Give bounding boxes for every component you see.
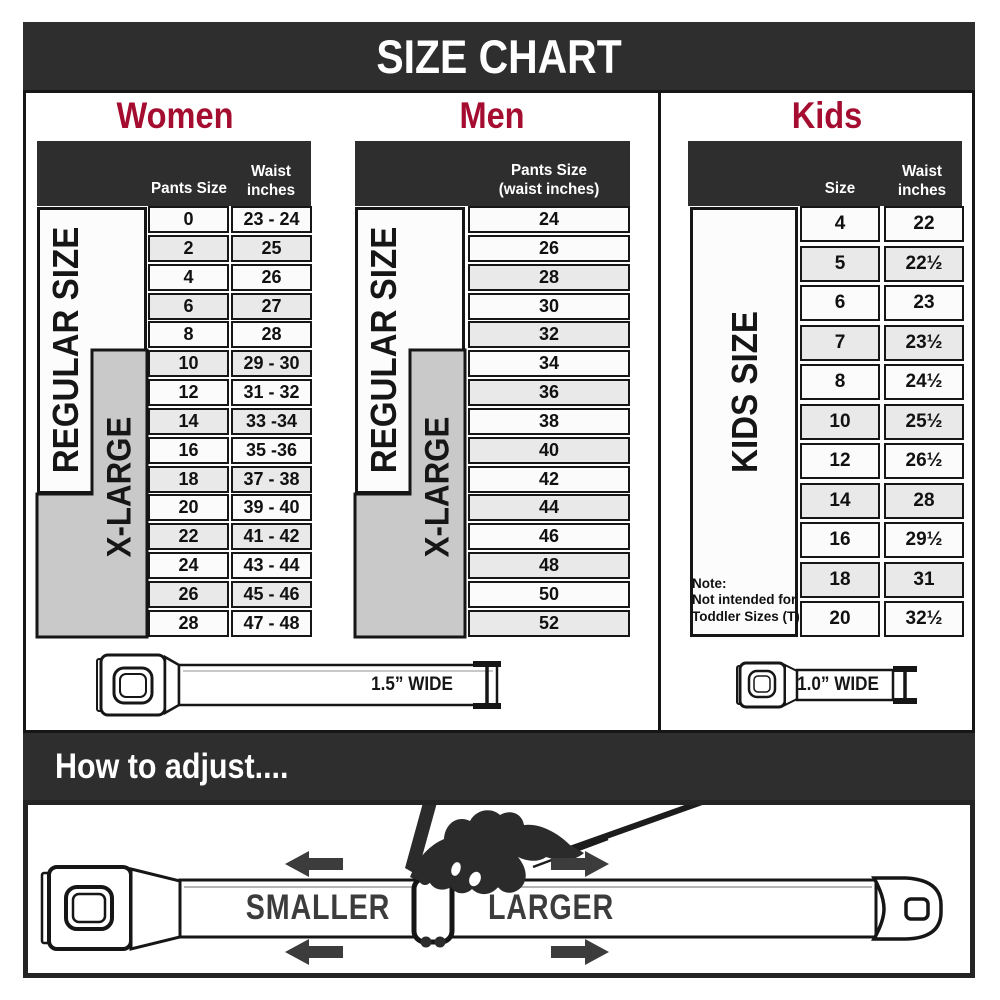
kids-table-header: Size Waist inches [688,141,962,206]
larger-label: LARGER [488,888,614,928]
pants-size-cell: 8 [148,321,229,348]
waist-cell: 26 [231,264,312,291]
howto-bar: How to adjust.... [23,733,975,800]
table-row: 2847 - 48 [148,610,312,637]
table-row: 50 [468,581,630,608]
waist-cell: 31 [884,562,964,598]
table-row: 627 [148,293,312,320]
smaller-label: SMALLER [246,888,390,928]
men-heading: Men [459,96,524,137]
page-title: SIZE CHART [376,29,621,84]
kids-waist-header-line2: inches [884,182,960,200]
table-row: 2241 - 42 [148,523,312,550]
table-row: 1629½ [800,522,964,558]
table-row: 24 [468,206,630,233]
pants-size-cell: 26 [468,235,630,262]
table-row: 44 [468,494,630,521]
women-table-rows: 023 - 242254266278281029 - 301231 - 3214… [148,206,312,637]
table-row: 1226½ [800,443,964,479]
width-marker-icon [893,666,917,704]
men-pants-size-header-line2: (waist inches) [472,181,626,199]
waist-cell: 32½ [884,601,964,637]
table-row: 023 - 24 [148,206,312,233]
table-row: 2032½ [800,601,964,637]
pants-size-cell: 16 [148,437,229,464]
pants-size-cell: 48 [468,552,630,579]
pants-size-cell: 30 [468,293,630,320]
size-chart-infographic: SIZE CHART Women Men Kids Pants Size Wai… [0,0,1000,1000]
table-row: 225 [148,235,312,262]
kids-size-label: KIDS SIZE [724,311,766,473]
table-row: 1231 - 32 [148,379,312,406]
kids-waist-header: Waist inches [884,163,960,200]
pants-size-cell: 18 [148,466,229,493]
waist-cell: 28 [231,321,312,348]
size-cell: 10 [800,404,880,440]
table-row: 723½ [800,325,964,361]
pants-size-cell: 46 [468,523,630,550]
pants-size-cell: 50 [468,581,630,608]
kids-note-line2: Not intended for [692,592,804,608]
waist-cell: 41 - 42 [231,523,312,550]
waist-cell: 23½ [884,325,964,361]
kids-note: Note: Not intended for Toddler Sizes (T) [692,576,804,625]
pants-size-cell: 42 [468,466,630,493]
table-row: 32 [468,321,630,348]
table-row: 422 [800,206,964,242]
women-regular-size-label: REGULAR SIZE [45,227,87,474]
table-row: 1635 -36 [148,437,312,464]
table-row: 52 [468,610,630,637]
pants-size-cell: 24 [468,206,630,233]
men-pants-size-header: Pants Size (waist inches) [472,162,626,199]
size-cell: 6 [800,285,880,321]
pants-size-cell: 28 [148,610,229,637]
pants-size-cell: 44 [468,494,630,521]
waist-cell: 24½ [884,364,964,400]
pants-size-cell: 22 [148,523,229,550]
pants-size-cell: 32 [468,321,630,348]
table-row: 1433 -34 [148,408,312,435]
pants-size-cell: 12 [148,379,229,406]
arrow-right-icon [551,939,609,965]
table-row: 426 [148,264,312,291]
size-cell: 4 [800,206,880,242]
pants-size-cell: 36 [468,379,630,406]
waist-cell: 28 [884,483,964,519]
table-row: 1837 - 38 [148,466,312,493]
table-row: 1029 - 30 [148,350,312,377]
kids-table-rows: 422522½623723½824½1025½1226½14281629½183… [800,206,964,637]
size-cell: 14 [800,483,880,519]
waist-cell: 26½ [884,443,964,479]
waist-cell: 22½ [884,246,964,282]
waist-cell: 39 - 40 [231,494,312,521]
women-waist-header: Waist inches [232,163,310,200]
size-cell: 8 [800,364,880,400]
women-heading: Women [117,96,234,137]
belt-buckle-icon [737,663,797,707]
adult-belt-width-label: 1.5” WIDE [371,674,453,696]
waist-cell: 35 -36 [231,437,312,464]
women-waist-header-line1: Waist [232,163,310,181]
section-divider [658,90,661,733]
pants-size-cell: 34 [468,350,630,377]
men-pants-size-header-line1: Pants Size [472,162,626,180]
size-cell: 5 [800,246,880,282]
table-row: 26 [468,235,630,262]
kids-note-line1: Note: [692,576,804,592]
waist-cell: 47 - 48 [231,610,312,637]
arrow-left-icon [285,851,343,877]
women-xlarge-label: X-LARGE [101,417,140,558]
waist-cell: 37 - 38 [231,466,312,493]
women-table-header: Pants Size Waist inches [37,141,311,206]
pants-size-cell: 2 [148,235,229,262]
pants-size-cell: 40 [468,437,630,464]
kids-waist-header-line1: Waist [884,163,960,181]
table-row: 48 [468,552,630,579]
pants-size-cell: 4 [148,264,229,291]
pants-size-cell: 0 [148,206,229,233]
belt-buckle-icon [42,867,180,949]
table-row: 2039 - 40 [148,494,312,521]
table-row: 40 [468,437,630,464]
waist-cell: 43 - 44 [231,552,312,579]
table-row: 1428 [800,483,964,519]
waist-cell: 45 - 46 [231,581,312,608]
table-row: 38 [468,408,630,435]
waist-cell: 25 [231,235,312,262]
waist-cell: 29 - 30 [231,350,312,377]
size-cell: 12 [800,443,880,479]
size-cell: 7 [800,325,880,361]
table-row: 828 [148,321,312,348]
pants-size-cell: 20 [148,494,229,521]
table-row: 623 [800,285,964,321]
pants-size-cell: 14 [148,408,229,435]
men-table-header: Pants Size (waist inches) [355,141,630,206]
waist-cell: 25½ [884,404,964,440]
table-row: 30 [468,293,630,320]
waist-cell: 27 [231,293,312,320]
women-waist-header-line2: inches [232,182,310,200]
title-bar: SIZE CHART [23,22,975,90]
size-cell: 16 [800,522,880,558]
table-row: 2645 - 46 [148,581,312,608]
table-row: 522½ [800,246,964,282]
pants-size-cell: 6 [148,293,229,320]
pants-size-cell: 28 [468,264,630,291]
waist-cell: 33 -34 [231,408,312,435]
table-row: 34 [468,350,630,377]
table-row: 2443 - 44 [148,552,312,579]
table-row: 42 [468,466,630,493]
kids-size-header: Size [802,180,878,198]
pants-size-cell: 10 [148,350,229,377]
waist-cell: 22 [884,206,964,242]
pants-size-cell: 24 [148,552,229,579]
belt-buckle-icon [97,655,179,715]
men-xlarge-label: X-LARGE [419,417,458,558]
waist-cell: 23 - 24 [231,206,312,233]
pants-size-cell: 52 [468,610,630,637]
size-cell: 18 [800,562,880,598]
women-pants-size-header: Pants Size [150,180,228,198]
waist-cell: 23 [884,285,964,321]
pants-size-cell: 26 [148,581,229,608]
men-regular-size-label: REGULAR SIZE [363,227,405,474]
kids-belt-width-label: 1.0” WIDE [797,674,879,696]
kids-heading: Kids [792,96,863,137]
waist-cell: 31 - 32 [231,379,312,406]
waist-cell: 29½ [884,522,964,558]
howto-heading: How to adjust.... [55,747,288,787]
size-cell: 20 [800,601,880,637]
table-row: 36 [468,379,630,406]
table-row: 1831 [800,562,964,598]
men-table-rows: 242628303234363840424446485052 [468,206,630,637]
kids-note-line3: Toddler Sizes (T) [692,609,804,625]
belt-tip-icon [874,878,941,939]
pants-size-cell: 38 [468,408,630,435]
table-row: 1025½ [800,404,964,440]
arrow-left-icon [285,939,343,965]
table-row: 28 [468,264,630,291]
table-row: 46 [468,523,630,550]
table-row: 824½ [800,364,964,400]
